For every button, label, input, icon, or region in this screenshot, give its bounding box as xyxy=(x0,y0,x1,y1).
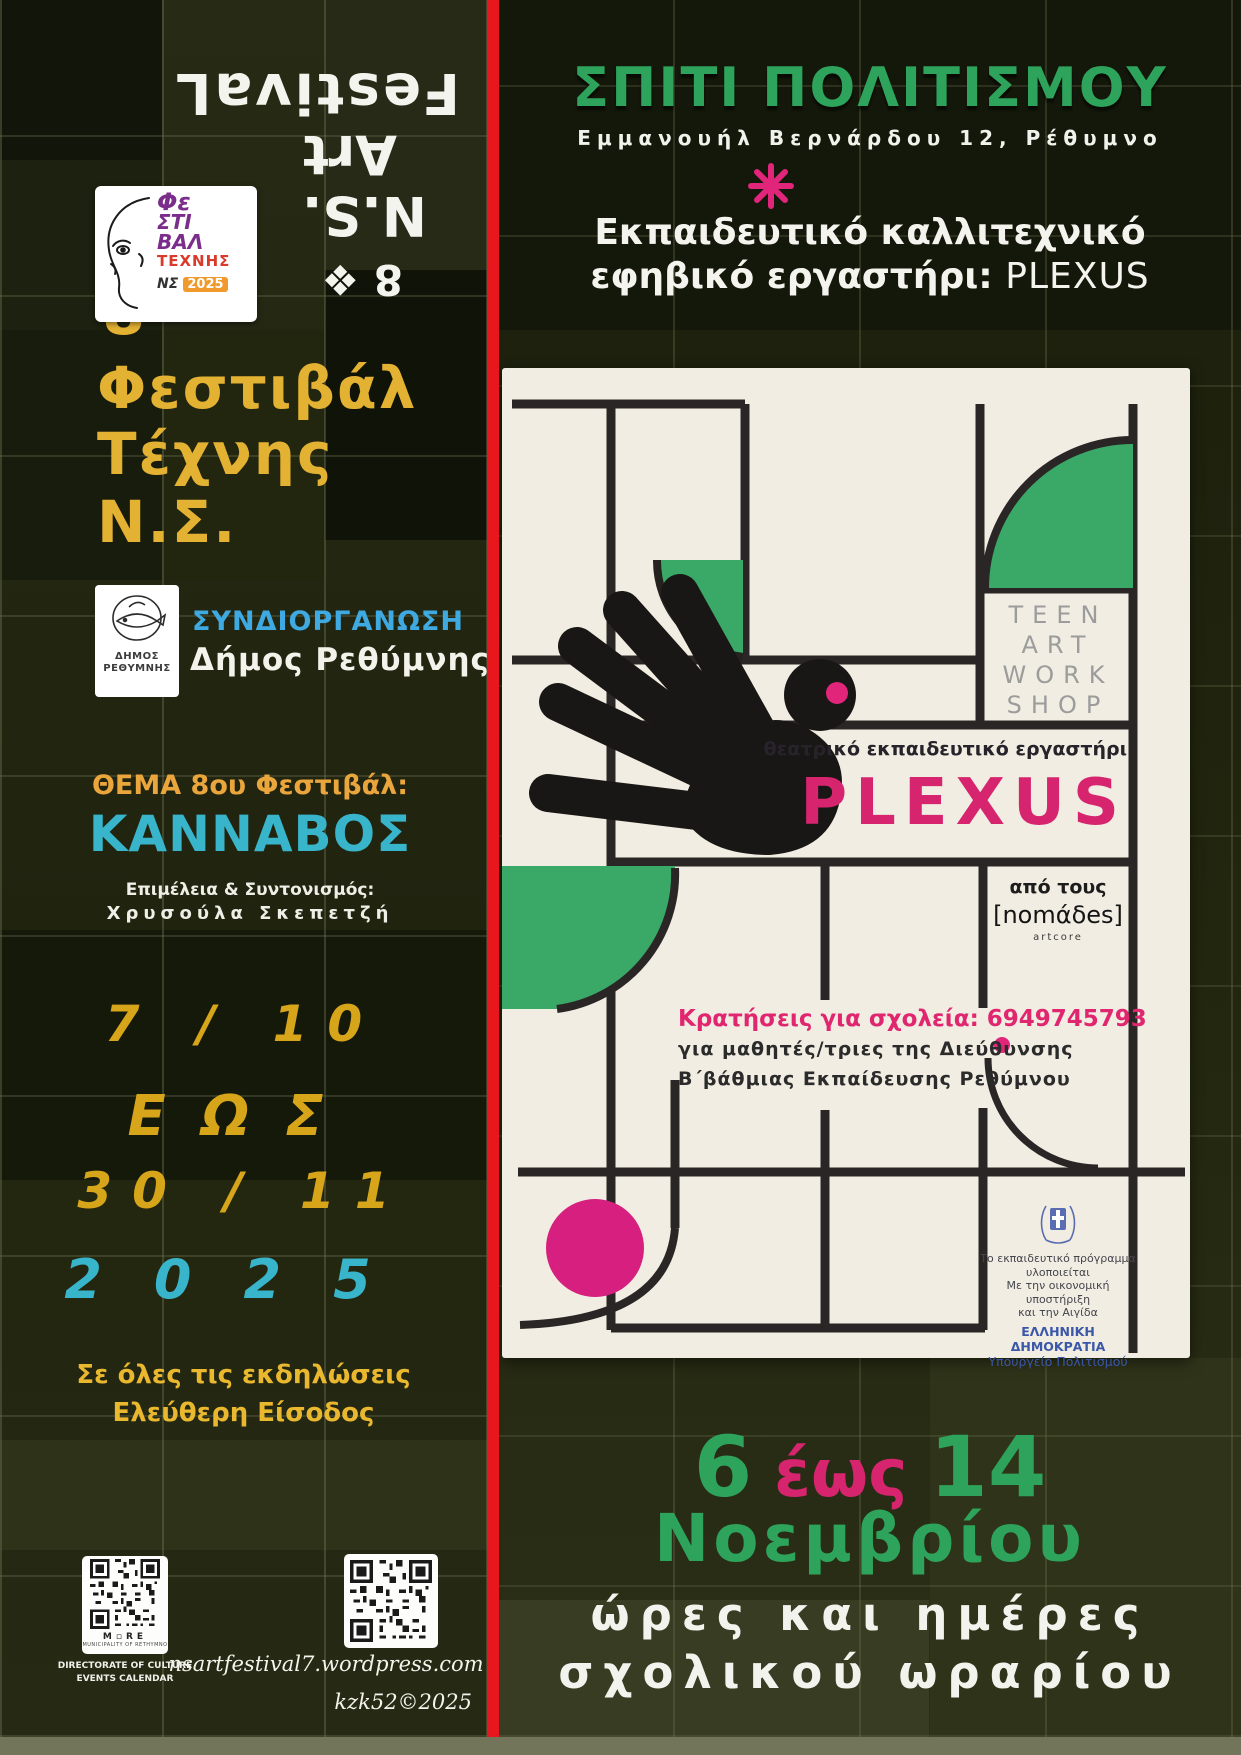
qr-pattern-icon xyxy=(90,1559,160,1629)
ministry-of-culture-label: Υπουργείο Πολιτισμού xyxy=(980,1354,1136,1369)
workshop-title-line1: Εκπαιδευτικό καλλιτεχνικό xyxy=(499,212,1241,253)
face-sketch-icon xyxy=(99,194,157,316)
festival-title-line1: Φεστιβάλ xyxy=(97,358,417,418)
municipality-logo-card: ΔΗΜΟΣ ΡΕΘΥΜΝΗΣ xyxy=(95,585,179,697)
theme-block: ΘΕΜΑ 8ου Φεστιβάλ: ΚΑΝΝΑΒΟΣ xyxy=(60,770,440,863)
date-end: 30 / 11 xyxy=(0,1162,487,1220)
logo-ns-signature: ΝΣ xyxy=(157,276,178,292)
rotated-festival: FestivaL xyxy=(72,60,472,124)
workshop-title-line2: εφηβικό εργαστήρι: PLEXUS xyxy=(499,256,1241,297)
date-start: 7 / 10 xyxy=(0,995,487,1053)
plexus-title: PLEXUS xyxy=(607,766,1127,840)
theme-value: ΚΑΝΝΑΒΟΣ xyxy=(60,805,440,863)
festival-logo-text: Φε ΣΤΙ ΒΑΛ ΤΕΧΝΗΣ ΝΣ 2025 xyxy=(157,192,253,292)
group-name: [nomάδes] xyxy=(988,901,1128,929)
qr-brand-text: M▫RE xyxy=(82,1633,168,1642)
logo-line-bal: ΒΑΛ xyxy=(157,232,253,252)
red-divider-line xyxy=(487,0,499,1737)
venue-name: ΣΠΙΤΙ ΠΟΛΙΤΙΣΜΟΥ xyxy=(499,56,1241,119)
festival-title-line3: Ν.Σ. xyxy=(97,492,237,552)
pink-asterisk-icon xyxy=(747,162,795,210)
date-year: 2025 xyxy=(0,1248,487,1311)
hellenic-republic-emblem-icon xyxy=(1038,1200,1078,1246)
municipality-name-line1: ΔΗΜΟΣ xyxy=(95,651,179,663)
qr-brand-subtext: MUNICIPALITY OF RETHYMNO xyxy=(82,1642,168,1648)
logo-line-sti: ΣΤΙ xyxy=(157,212,253,232)
schedule-line1: ώρες και ημέρες xyxy=(499,1588,1241,1641)
festival-website: nsartfestival7.wordpress.com xyxy=(168,1652,484,1676)
booking-audience-line1: για μαθητές/τριες της Διεύθυνσης xyxy=(678,1038,1074,1060)
festival-poster: 8 ❖ N.S. Art FestivaL Φε ΣΤΙ ΒΑΛ ΤΕΧΝΗΣ … xyxy=(0,0,1241,1755)
qr-code-festival-site xyxy=(344,1554,438,1648)
plexus-artwork-card: TEEN ART WORK SHOP θεατρικό εκπαιδευτικό… xyxy=(502,368,1190,1358)
workshop-title-name: PLEXUS xyxy=(1005,256,1149,297)
logo-line-fe: Φε xyxy=(157,192,253,212)
poster-credit: kzk52©2025 xyxy=(252,1690,472,1714)
qr-pattern-icon xyxy=(350,1560,432,1642)
festival-title-line2: Τέχνης xyxy=(97,424,333,484)
schedule-line2: σχολικού ωραρίου xyxy=(499,1646,1241,1699)
teen-line: TEEN xyxy=(988,600,1128,630)
ministry-line: Το εκπαιδευτικό πρόγραμμα xyxy=(980,1252,1136,1266)
free-entry-line1: Σε όλες τις εκδηλώσεις xyxy=(0,1360,487,1390)
coorganizer-name: Δήμος Ρεθύμνης xyxy=(190,642,490,678)
grid-artwork xyxy=(502,368,1190,1358)
qr-code-municipality: M▫RE MUNICIPALITY OF RETHYMNO xyxy=(82,1556,168,1654)
curator-name: Χρυσούλα Σκεπετζή xyxy=(60,903,440,924)
curation-block: Επιμέλεια & Συντονισμός: Χρυσούλα Σκεπετ… xyxy=(60,880,440,924)
theme-label: ΘΕΜΑ 8ου Φεστιβάλ: xyxy=(60,770,440,801)
ministry-line: και την Αιγίδα xyxy=(980,1306,1136,1320)
ministry-block: Το εκπαιδευτικό πρόγραμμα υλοποιείται Με… xyxy=(980,1252,1136,1369)
rotated-art: Art xyxy=(72,124,472,184)
fish-emblem-icon xyxy=(105,589,169,647)
venue-address: Εμμανουήλ Βερνάρδου 12, Ρέθυμνο xyxy=(499,126,1241,150)
booking-audience-line2: Β΄βάθμιας Εκπαίδευσης Ρεθύμνου xyxy=(678,1068,1071,1090)
festival-logo-card: Φε ΣΤΙ ΒΑΛ ΤΕΧΝΗΣ ΝΣ 2025 xyxy=(95,186,257,322)
workshop-title-line2-text: εφηβικό εργαστήρι: xyxy=(590,256,992,297)
date-month: Νοεμβρίου xyxy=(499,1500,1241,1577)
booking-phone-line: Κρατήσεις για σχολεία: 6949745793 xyxy=(678,1006,1147,1032)
teen-line: SHOP xyxy=(988,690,1128,720)
logo-year-badge: 2025 xyxy=(183,277,227,292)
teen-line: ART xyxy=(988,630,1128,660)
group-subname: artcore xyxy=(988,932,1128,943)
bottom-olive-strip xyxy=(0,1737,1241,1755)
coorganization-label: ΣΥΝΔΙΟΡΓΑΝΩΣΗ xyxy=(192,606,464,637)
ministry-line: Με την οικονομική υποστήριξη xyxy=(980,1279,1136,1306)
ministry-line: υλοποιείται xyxy=(980,1266,1136,1280)
by-label: από τους xyxy=(988,876,1128,898)
curation-label: Επιμέλεια & Συντονισμός: xyxy=(60,880,440,900)
free-entry-line2: Ελεύθερη Είσοδος xyxy=(0,1398,487,1428)
teen-line: WORK xyxy=(988,660,1128,690)
date-connector: ΕΩΣ xyxy=(0,1084,487,1149)
teen-art-workshop-block: TEEN ART WORK SHOP xyxy=(988,600,1128,720)
municipality-name-line2: ΡΕΘΥΜΝΗΣ xyxy=(95,663,179,675)
logo-line-texnis: ΤΕΧΝΗΣ xyxy=(157,252,253,270)
hellenic-republic-label: ΕΛΛΗΝΙΚΗ ΔΗΜΟΚΡΑΤΙΑ xyxy=(980,1324,1136,1354)
theater-workshop-label: θεατρικό εκπαιδευτικό εργαστήρι xyxy=(611,738,1127,760)
